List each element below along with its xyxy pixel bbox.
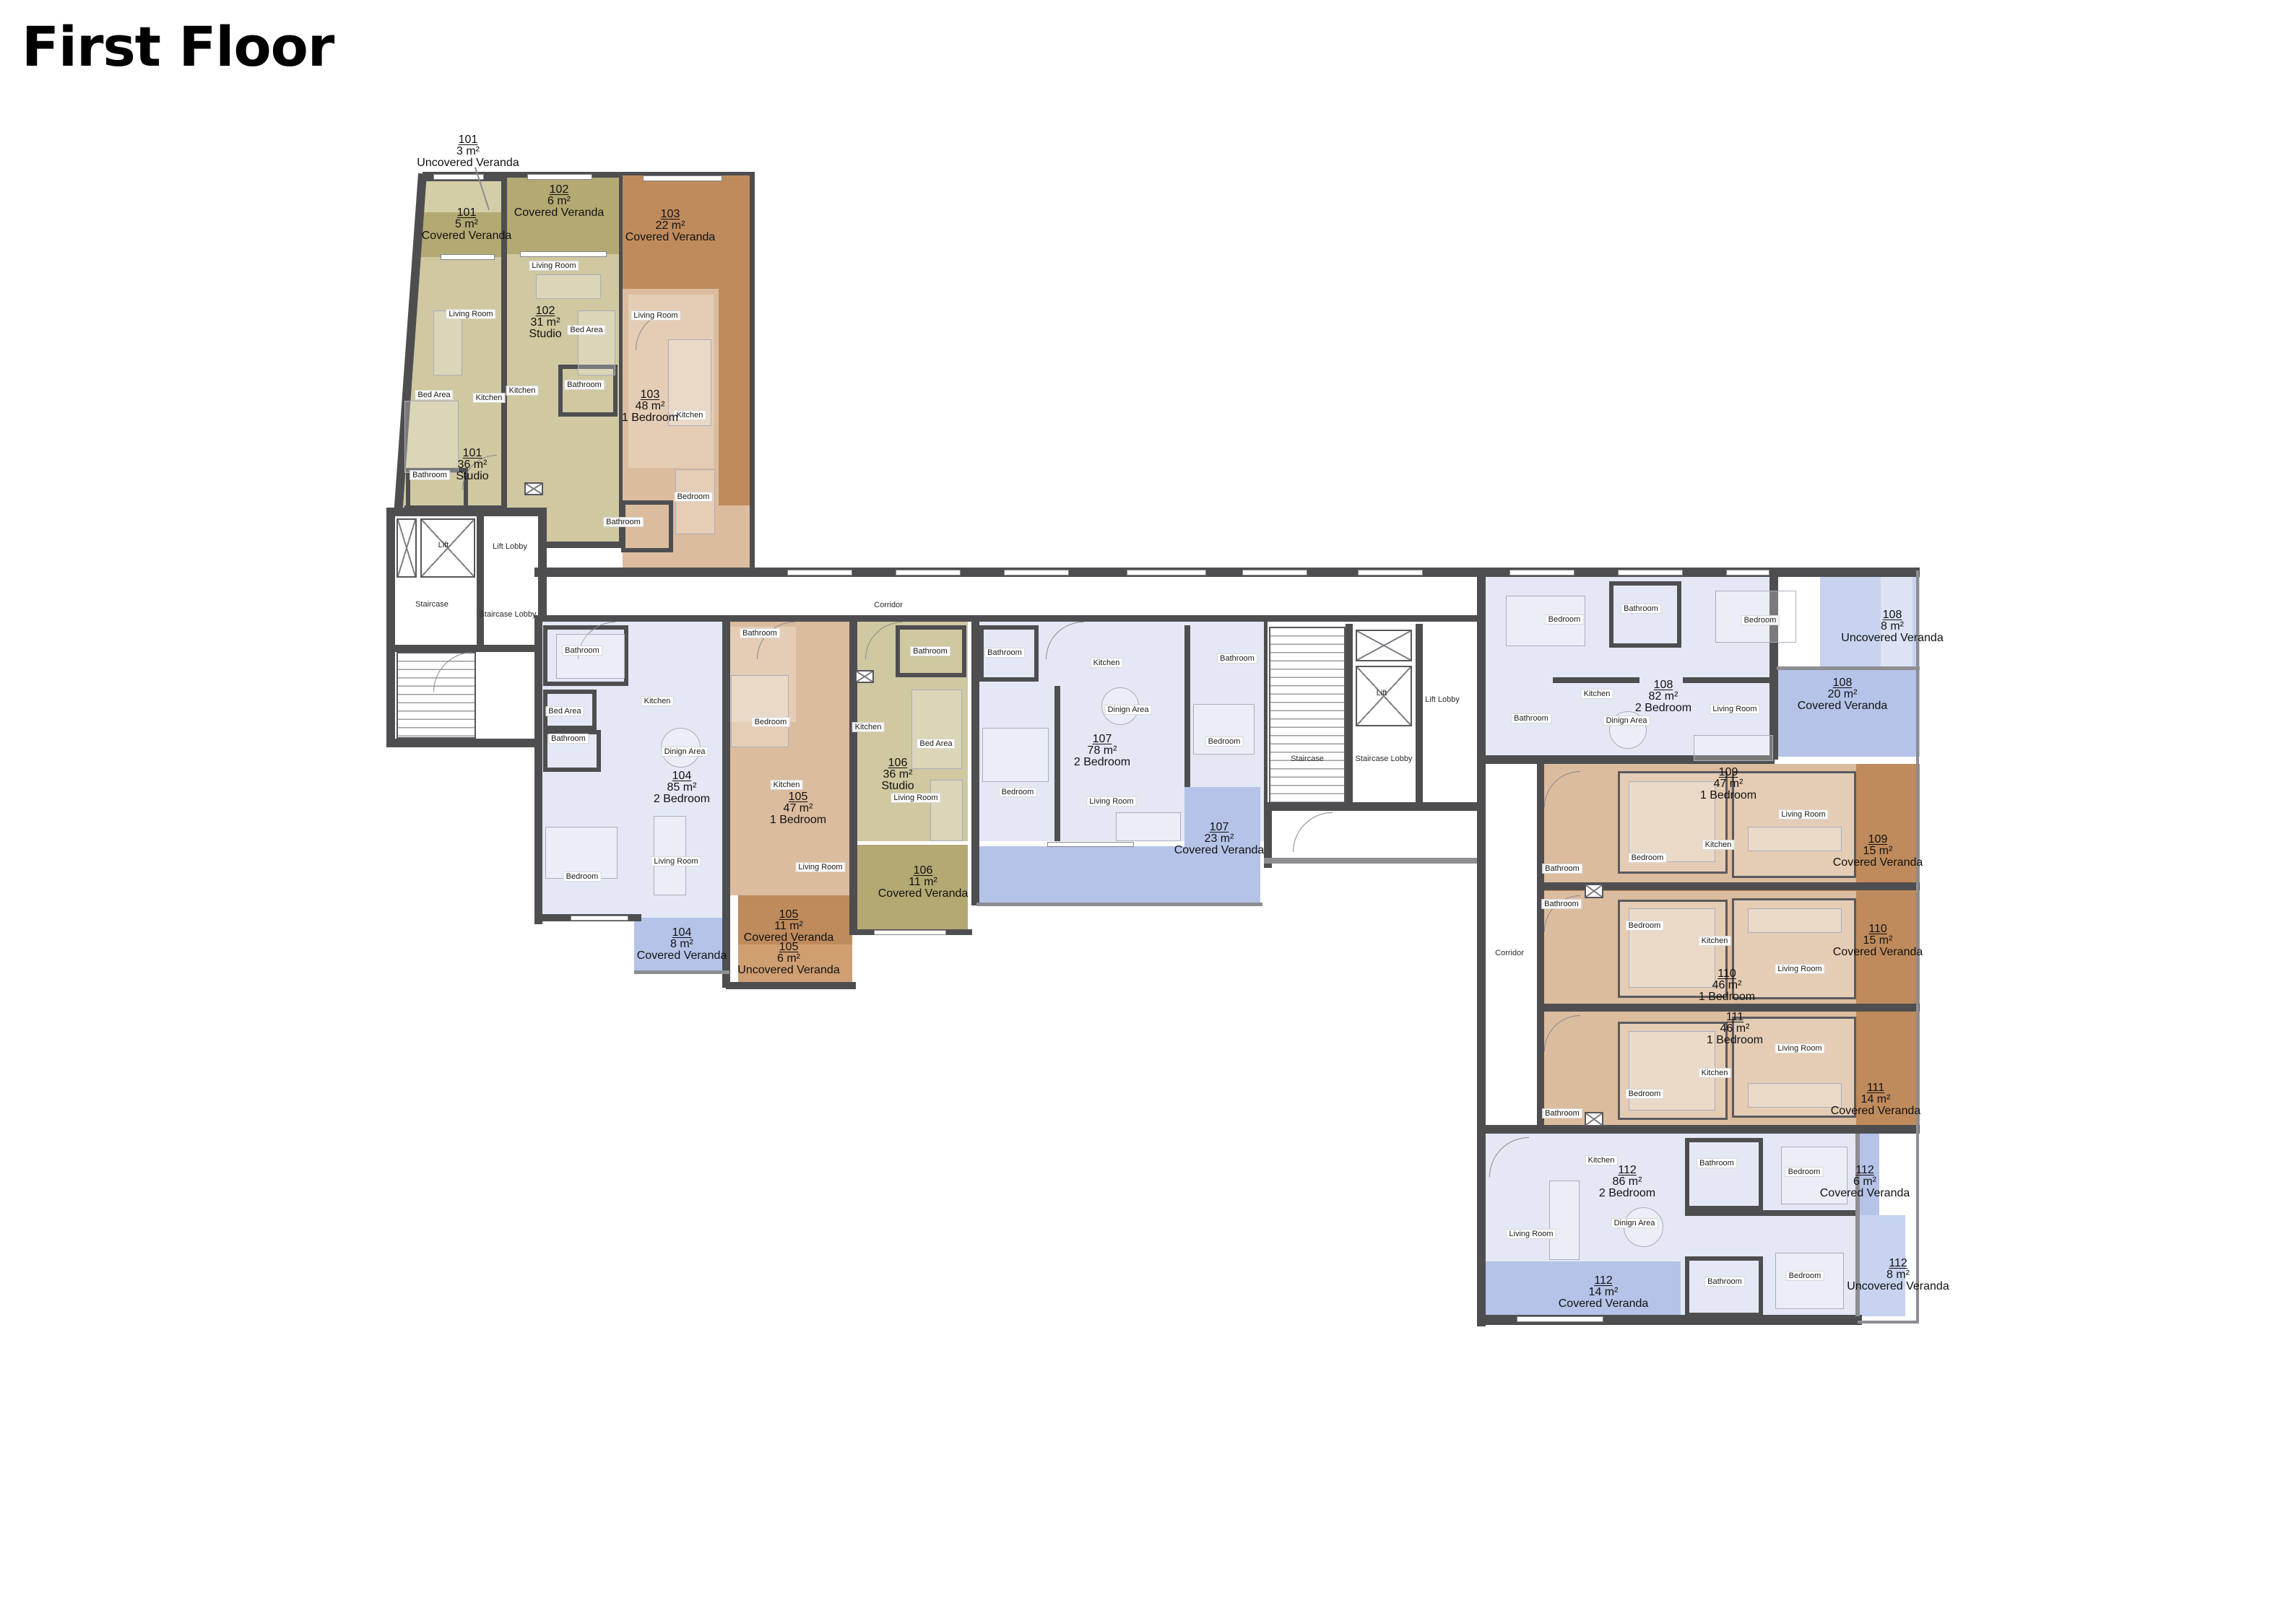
room-104-bathroom-1: Bathroom xyxy=(562,646,602,656)
bed-furniture xyxy=(404,401,459,473)
unit-101-covered-veranda-label: 1015 m²Covered Veranda xyxy=(422,207,512,242)
corridor-main: Corridor xyxy=(874,601,903,609)
unit-108-uncovered-veranda-label: 1088 m²Uncovered Veranda xyxy=(1841,609,1943,644)
room-102-bedarea: Bed Area xyxy=(567,325,605,335)
room-101-bedarea: Bed Area xyxy=(415,390,453,400)
wall xyxy=(726,982,856,989)
unit-105-covered-veranda-label: 10511 m²Covered Veranda xyxy=(744,909,834,944)
window xyxy=(1517,1316,1603,1322)
room-108-bathroom-1: Bathroom xyxy=(1621,604,1661,614)
room-104-bathroom-2: Bathroom xyxy=(548,734,589,744)
room-101-bathroom: Bathroom xyxy=(410,470,450,480)
core-left-lift: Lift xyxy=(438,541,449,549)
room-110-living: Living Room xyxy=(1775,964,1824,974)
shaft-icon xyxy=(1585,1112,1603,1126)
staircase-treads xyxy=(1269,627,1346,804)
unit-112-label: 11286 m²2 Bedroom xyxy=(1599,1165,1655,1199)
unit-108-covered-veranda-label: 10820 m²Covered Veranda xyxy=(1798,677,1888,712)
wall xyxy=(386,739,547,747)
unit-112-covered-veranda-6-label: 1126 m²Covered Veranda xyxy=(1820,1165,1910,1199)
wall xyxy=(1477,568,1486,1326)
shaft-icon xyxy=(1585,884,1603,898)
room-104-dining: Dinign Area xyxy=(662,747,709,757)
wall xyxy=(386,508,395,747)
door-arc xyxy=(1293,812,1333,852)
wall-light xyxy=(1264,858,1485,864)
wall xyxy=(395,645,540,652)
room-108-kitchen: Kitchen xyxy=(1581,689,1613,699)
unit-108-label: 10882 m²2 Bedroom xyxy=(1635,679,1691,714)
unit-109-covered-veranda-label: 10915 m²Covered Veranda xyxy=(1833,834,1923,869)
wall xyxy=(1264,802,1485,811)
room-104-kitchen: Kitchen xyxy=(641,696,674,706)
room-111-bedroom: Bedroom xyxy=(1626,1089,1664,1099)
window xyxy=(643,175,722,181)
shaft-icon xyxy=(855,670,874,683)
unit-107-label: 10778 m²2 Bedroom xyxy=(1074,734,1130,768)
unit-106-covered-veranda-label: 10611 m²Covered Veranda xyxy=(878,865,969,900)
core-left-liftlobby: Lift Lobby xyxy=(493,542,527,551)
sofa-furniture xyxy=(1748,1083,1842,1108)
bed-furniture xyxy=(675,469,715,534)
window xyxy=(1358,570,1423,575)
room-110-bedroom: Bedroom xyxy=(1626,921,1664,931)
corridor-right: Corridor xyxy=(1495,949,1524,957)
wall xyxy=(386,508,547,516)
room-107-bathroom-2: Bathroom xyxy=(1217,653,1257,664)
sofa-furniture xyxy=(1549,1181,1580,1260)
unit-111-covered-veranda-label: 11114 m²Covered Veranda xyxy=(1831,1082,1921,1117)
veranda-edge xyxy=(976,903,1262,906)
unit-105-label: 10547 m²1 Bedroom xyxy=(770,791,826,826)
room-112-bathroom-1: Bathroom xyxy=(1697,1158,1737,1168)
room-109-bathroom: Bathroom xyxy=(1542,864,1582,874)
room-112-bedroom-1: Bedroom xyxy=(1785,1167,1824,1177)
room-103-kitchen: Kitchen xyxy=(674,410,706,420)
core-mid-staircase: Staircase xyxy=(1291,755,1324,763)
room-104-bedarea: Bed Area xyxy=(545,706,584,716)
window xyxy=(571,916,628,921)
unit-103-covered-veranda-floor xyxy=(717,289,750,509)
window xyxy=(874,930,946,935)
unit-109-label: 10947 m²1 Bedroom xyxy=(1700,767,1756,801)
unit-103-covered-veranda-label: 10322 m²Covered Veranda xyxy=(625,209,716,243)
unit-104-label: 10485 m²2 Bedroom xyxy=(654,770,710,805)
bed-furniture xyxy=(1775,1253,1844,1309)
window xyxy=(1618,570,1683,575)
room-112-living: Living Room xyxy=(1506,1229,1556,1239)
room-112-bathroom-2: Bathroom xyxy=(1704,1277,1745,1287)
sofa-furniture xyxy=(433,310,462,375)
unit-107-covered-veranda-floor xyxy=(976,846,1184,904)
unit-103-label: 10348 m²1 Bedroom xyxy=(622,389,678,424)
wall xyxy=(1553,677,1639,683)
unit-112-bathroom2-walls xyxy=(1685,1256,1763,1317)
shaft-icon xyxy=(524,482,543,495)
wall xyxy=(1683,677,1773,683)
sofa-furniture xyxy=(1748,827,1842,851)
unit-110-label: 11046 m²1 Bedroom xyxy=(1699,968,1755,1003)
veranda-edge xyxy=(1777,666,1920,670)
lift-shaft-icon xyxy=(397,518,417,578)
room-102-bathroom: Bathroom xyxy=(564,380,605,390)
window xyxy=(441,254,495,260)
wall xyxy=(1685,1210,1858,1216)
bed-furniture xyxy=(982,728,1049,782)
window xyxy=(1004,570,1069,575)
room-111-kitchen: Kitchen xyxy=(1699,1068,1731,1078)
room-109-living: Living Room xyxy=(1778,809,1828,820)
room-103-living: Living Room xyxy=(631,310,680,321)
wall xyxy=(1184,625,1190,787)
wall xyxy=(1537,762,1544,1131)
room-101-living: Living Room xyxy=(446,309,495,319)
floor-plan-canvas: First Floor xyxy=(0,0,2296,1621)
room-102-living: Living Room xyxy=(529,261,579,271)
wall xyxy=(477,516,484,650)
room-105-bathroom: Bathroom xyxy=(740,628,780,638)
wall xyxy=(971,615,979,905)
room-101-kitchen: Kitchen xyxy=(473,393,506,403)
window xyxy=(527,174,592,180)
room-106-living: Living Room xyxy=(891,793,940,803)
core-mid-lift: Lift xyxy=(1377,689,1387,697)
window xyxy=(1242,570,1307,575)
room-102-kitchen: Kitchen xyxy=(506,386,539,396)
bed-furniture xyxy=(578,310,615,375)
room-105-living: Living Room xyxy=(795,862,845,872)
core-left-staircase: Staircase xyxy=(415,600,449,609)
room-111-living: Living Room xyxy=(1775,1043,1824,1053)
window xyxy=(787,570,852,575)
sofa-furniture xyxy=(1116,812,1181,841)
wall xyxy=(849,615,857,933)
bed-furniture xyxy=(556,634,625,679)
sofa-furniture xyxy=(1748,908,1842,933)
wall xyxy=(1054,686,1060,841)
room-107-bedroom-2: Bedroom xyxy=(1205,736,1244,747)
room-108-bedroom-1: Bedroom xyxy=(1546,614,1584,625)
room-108-bedroom-2: Bedroom xyxy=(1741,615,1780,625)
room-109-kitchen: Kitchen xyxy=(1702,840,1735,850)
unit-112-uncovered-veranda-label: 1128 m²Uncovered Veranda xyxy=(1847,1258,1949,1292)
room-108-bathroom-2: Bathroom xyxy=(1511,713,1551,723)
room-110-bathroom: Bathroom xyxy=(1541,899,1582,909)
sofa-furniture xyxy=(654,816,686,895)
veranda-edge xyxy=(1858,1321,1919,1324)
lift-shaft-icon xyxy=(1356,630,1412,661)
sofa-furniture xyxy=(536,274,601,299)
unit-101-label: 10136 m²Studio xyxy=(456,448,488,482)
room-105-kitchen: Kitchen xyxy=(771,780,803,790)
room-108-living: Living Room xyxy=(1710,704,1759,714)
core-mid-liftlobby: Lift Lobby xyxy=(1425,695,1460,704)
unit-101-uncovered-veranda-label: 1013 m²Uncovered Veranda xyxy=(417,134,519,169)
core-mid-staircaselobby: Staircase Lobby xyxy=(1356,755,1413,763)
unit-102-covered-veranda-label: 1026 m²Covered Veranda xyxy=(514,184,605,219)
wall xyxy=(1416,624,1423,804)
unit-112-covered-veranda-14-label: 11214 m²Covered Veranda xyxy=(1559,1275,1649,1310)
unit-108-bathroom-walls xyxy=(1609,581,1681,648)
room-107-living: Living Room xyxy=(1086,796,1136,807)
room-112-kitchen: Kitchen xyxy=(1585,1155,1618,1165)
unit-102-label: 10231 m²Studio xyxy=(529,305,561,340)
bed-furniture xyxy=(1193,704,1255,755)
unit-106-label: 10636 m²Studio xyxy=(881,757,914,792)
sofa-furniture xyxy=(1694,735,1773,761)
unit-107-covered-veranda-label: 10723 m²Covered Veranda xyxy=(1174,822,1265,856)
room-106-bedarea: Bed Area xyxy=(917,739,955,749)
bed-furniture xyxy=(731,675,789,747)
window xyxy=(896,570,961,575)
window xyxy=(520,251,607,257)
room-107-bedroom-1: Bedroom xyxy=(999,787,1037,797)
window xyxy=(1726,570,1769,575)
room-107-dining: Dinign Area xyxy=(1105,705,1152,715)
unit-111-label: 11146 m²1 Bedroom xyxy=(1707,1012,1763,1046)
unit-112-bathroom1-walls xyxy=(1685,1138,1763,1210)
corridor-bottom-wall xyxy=(534,615,1485,622)
wall xyxy=(1346,624,1353,804)
room-106-bathroom: Bathroom xyxy=(910,646,950,656)
core-left-staircaselobby: Staircase Lobby xyxy=(480,610,537,619)
page-title: First Floor xyxy=(22,14,334,79)
unit-105-uncovered-veranda-label: 1056 m²Uncovered Veranda xyxy=(737,942,839,976)
room-106-kitchen: Kitchen xyxy=(852,722,885,732)
room-108-dining: Dinign Area xyxy=(1603,716,1650,726)
unit-104-covered-veranda-label: 1048 m²Covered Veranda xyxy=(637,927,727,962)
window xyxy=(1127,570,1206,575)
window xyxy=(1047,842,1134,847)
room-112-dining: Dinign Area xyxy=(1611,1218,1658,1228)
room-111-bathroom: Bathroom xyxy=(1542,1108,1582,1118)
room-105-bedroom: Bedroom xyxy=(752,717,790,727)
room-104-living: Living Room xyxy=(651,856,701,866)
room-110-kitchen: Kitchen xyxy=(1699,936,1731,946)
bed-furniture xyxy=(911,690,962,769)
room-103-bedroom: Bedroom xyxy=(675,492,713,502)
room-103-bathroom: Bathroom xyxy=(603,517,644,527)
room-109-bedroom: Bedroom xyxy=(1629,853,1667,863)
window xyxy=(1509,570,1574,575)
sofa-furniture xyxy=(930,780,963,841)
veranda-edge xyxy=(634,970,729,974)
room-107-kitchen: Kitchen xyxy=(1091,658,1123,668)
room-104-bedroom: Bedroom xyxy=(563,872,602,882)
wall xyxy=(534,615,542,924)
room-107-bathroom-1: Bathroom xyxy=(984,648,1025,658)
room-112-bedroom-2: Bedroom xyxy=(1786,1271,1824,1281)
unit-110-covered-veranda-label: 11015 m²Covered Veranda xyxy=(1833,924,1923,958)
